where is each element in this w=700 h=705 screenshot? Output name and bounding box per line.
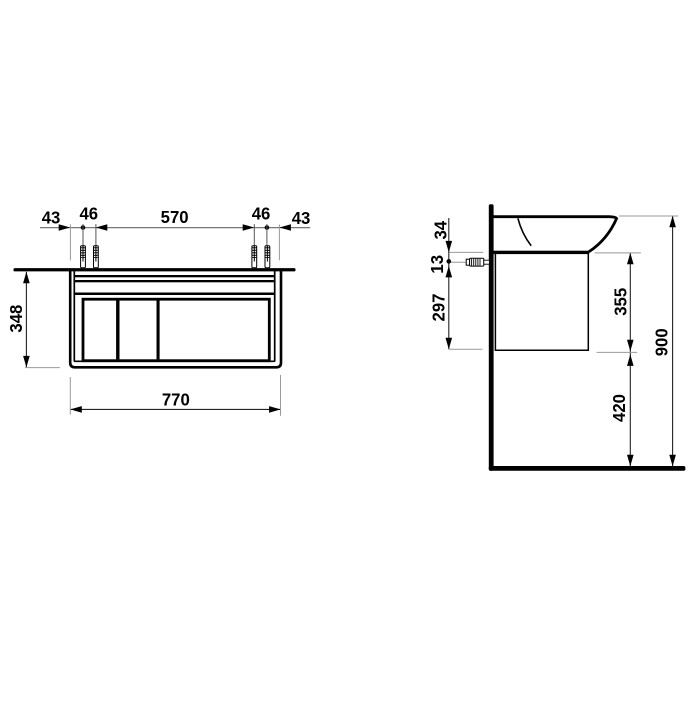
svg-text:43: 43 [42, 207, 61, 228]
svg-text:34: 34 [430, 221, 451, 240]
svg-text:770: 770 [162, 389, 190, 410]
svg-text:570: 570 [161, 206, 189, 227]
svg-text:46: 46 [252, 203, 271, 224]
svg-text:355: 355 [610, 288, 631, 316]
svg-text:900: 900 [651, 328, 672, 356]
svg-text:297: 297 [428, 294, 449, 322]
svg-text:348: 348 [5, 304, 26, 332]
svg-text:46: 46 [79, 203, 98, 224]
svg-text:420: 420 [609, 394, 630, 422]
svg-text:13: 13 [426, 255, 447, 274]
svg-text:43: 43 [292, 207, 311, 228]
